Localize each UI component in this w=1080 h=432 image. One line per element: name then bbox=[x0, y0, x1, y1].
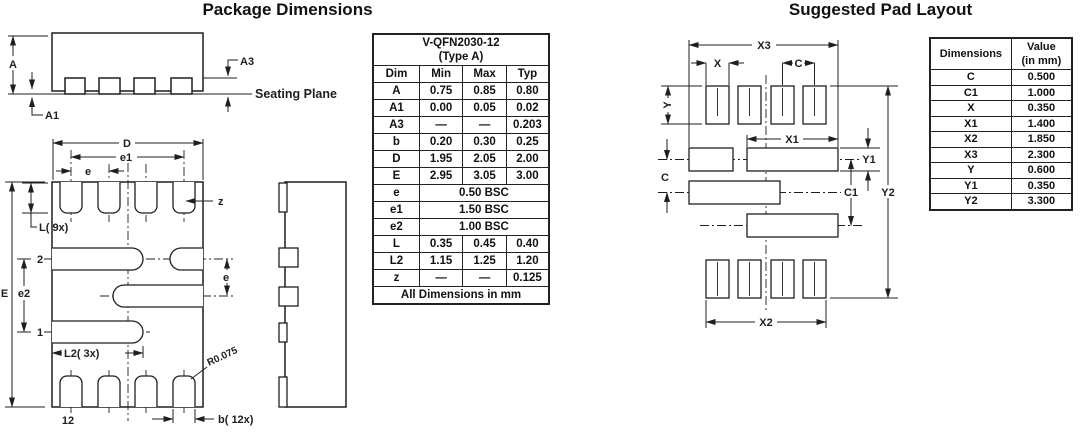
table-footer-row: All Dimensions in mm bbox=[373, 287, 549, 305]
dim-C-top: C bbox=[783, 58, 815, 85]
max-cell: 3.05 bbox=[463, 168, 506, 185]
table-row: C0.500 bbox=[930, 70, 1072, 86]
typ-cell: 0.40 bbox=[506, 236, 549, 253]
dim-L-label: L( 9x) bbox=[39, 222, 69, 234]
dim-e1-label: e1 bbox=[120, 152, 132, 164]
dim-C-left: C bbox=[661, 139, 669, 213]
dim-A3-label: A3 bbox=[240, 56, 254, 68]
typ-cell: 0.02 bbox=[506, 100, 549, 117]
dim-A1-label: A1 bbox=[45, 110, 59, 122]
dim-cell: Y2 bbox=[930, 194, 1011, 210]
table-header-row: Dimensions Value (in mm) bbox=[930, 38, 1072, 70]
table-row: Y10.350 bbox=[930, 178, 1072, 194]
dimensions-table: V-QFN2030-12 (Type A) Dim Min Max Typ A0… bbox=[372, 33, 550, 305]
pad-layout-view: X3 X C Y bbox=[658, 38, 898, 329]
value-cell: 0.500 bbox=[1011, 70, 1072, 86]
pin2-label: 2 bbox=[37, 254, 43, 266]
table-row: A10.000.050.02 bbox=[373, 100, 549, 117]
dim-D-label: D bbox=[123, 138, 131, 150]
package-side-view: Seating Plane A A1 A3 bbox=[6, 33, 337, 122]
dim-cell: z bbox=[373, 270, 419, 287]
min-cell: 0.20 bbox=[419, 134, 462, 151]
dim-Y2: Y2 bbox=[830, 86, 898, 298]
dim-A: A bbox=[6, 36, 48, 94]
min-cell: 1.15 bbox=[419, 253, 462, 270]
dim-cell: E bbox=[373, 168, 419, 185]
dim-cell: X1 bbox=[930, 116, 1011, 132]
pin1-label: 1 bbox=[37, 327, 43, 339]
table-row: X32.300 bbox=[930, 147, 1072, 163]
dim-C-top-label: C bbox=[795, 58, 803, 70]
dim-cell: X bbox=[930, 101, 1011, 117]
value-header-line1: Value bbox=[1012, 40, 1071, 54]
value-cell: 1.850 bbox=[1011, 132, 1072, 148]
radius-label: R0.075 bbox=[206, 345, 240, 369]
max-cell: 2.05 bbox=[463, 151, 506, 168]
min-cell: 0.00 bbox=[419, 100, 462, 117]
dim-e-right: e bbox=[220, 259, 233, 295]
table-row: E2.953.053.00 bbox=[373, 168, 549, 185]
max-cell: 0.45 bbox=[463, 236, 506, 253]
pad-layout-table: Dimensions Value (in mm) C0.500 C11.000 … bbox=[929, 37, 1073, 211]
dim-e2-label: e2 bbox=[18, 288, 30, 300]
value-cell: 3.300 bbox=[1011, 194, 1072, 210]
table-row: Y0.600 bbox=[930, 163, 1072, 179]
dim-Y2-label: Y2 bbox=[881, 187, 894, 199]
dim-C1-label: C1 bbox=[844, 187, 858, 199]
seating-plane-label: Seating Plane bbox=[255, 87, 337, 101]
dim-cell: L bbox=[373, 236, 419, 253]
dim-cell: A1 bbox=[373, 100, 419, 117]
dim-cell: C bbox=[930, 70, 1011, 86]
dim-cell: X2 bbox=[930, 132, 1011, 148]
typ-cell: 3.00 bbox=[506, 168, 549, 185]
dim-Y: Y bbox=[661, 86, 702, 124]
dim-cell: C1 bbox=[930, 85, 1011, 101]
dim-cell: A3 bbox=[373, 117, 419, 134]
typ-cell: 0.203 bbox=[506, 117, 549, 134]
dim-e: e bbox=[56, 166, 124, 178]
value-cell: 2.300 bbox=[1011, 147, 1072, 163]
dim-L2-label: L2( 3x) bbox=[64, 348, 100, 360]
dim-cell: A bbox=[373, 83, 419, 100]
dim-cell: Y1 bbox=[930, 178, 1011, 194]
dim-Y-label: Y bbox=[662, 101, 674, 109]
table-row: D1.952.052.00 bbox=[373, 151, 549, 168]
table-row: A0.750.850.80 bbox=[373, 83, 549, 100]
dim-C1: C1 bbox=[841, 160, 861, 226]
table-row: L0.350.450.40 bbox=[373, 236, 549, 253]
dim-X: X bbox=[691, 58, 744, 85]
package-side-profile bbox=[279, 182, 346, 407]
col-header-dim: Dim bbox=[373, 66, 419, 83]
col-header-value: Value (in mm) bbox=[1011, 38, 1072, 70]
min-cell: 0.75 bbox=[419, 83, 462, 100]
dim-X-label: X bbox=[714, 58, 722, 70]
span-cell: 0.50 BSC bbox=[419, 185, 549, 202]
dim-cell: L2 bbox=[373, 253, 419, 270]
min-cell: 2.95 bbox=[419, 168, 462, 185]
package-name: V-QFN2030-12 bbox=[374, 36, 548, 50]
pin12-label: 12 bbox=[62, 415, 74, 427]
dim-cell: e1 bbox=[373, 202, 419, 219]
dim-cell: e bbox=[373, 185, 419, 202]
table-title: V-QFN2030-12 (Type A) bbox=[373, 34, 549, 66]
dim-e1: e1 bbox=[71, 150, 184, 164]
col-header-max: Max bbox=[463, 66, 506, 83]
dim-b: b( 12x) bbox=[152, 409, 254, 426]
typ-cell: 2.00 bbox=[506, 151, 549, 168]
value-cell: 1.400 bbox=[1011, 116, 1072, 132]
dim-X3-label: X3 bbox=[757, 40, 770, 52]
typ-cell: 0.80 bbox=[506, 83, 549, 100]
table-row: A3——0.203 bbox=[373, 117, 549, 134]
table-row: X21.850 bbox=[930, 132, 1072, 148]
span-cell: 1.00 BSC bbox=[419, 219, 549, 236]
col-header-min: Min bbox=[419, 66, 462, 83]
datasheet-page: Package Dimensions Suggested Pad Layout … bbox=[0, 0, 1080, 432]
value-cell: 0.600 bbox=[1011, 163, 1072, 179]
dim-e-right-label: e bbox=[223, 272, 229, 284]
dim-C-left-label: C bbox=[661, 172, 669, 184]
max-cell: — bbox=[463, 270, 506, 287]
max-cell: 0.85 bbox=[463, 83, 506, 100]
table-footer: All Dimensions in mm bbox=[373, 287, 549, 305]
min-cell: 0.35 bbox=[419, 236, 462, 253]
table-row: X0.350 bbox=[930, 101, 1072, 117]
max-cell: 1.25 bbox=[463, 253, 506, 270]
dim-cell: b bbox=[373, 134, 419, 151]
table-row: L21.151.251.20 bbox=[373, 253, 549, 270]
max-cell: 0.30 bbox=[463, 134, 506, 151]
table-row: b0.200.300.25 bbox=[373, 134, 549, 151]
table-row: z——0.125 bbox=[373, 270, 549, 287]
min-cell: — bbox=[419, 117, 462, 134]
col-header-dimensions: Dimensions bbox=[930, 38, 1011, 70]
dim-X2-label: X2 bbox=[759, 317, 772, 329]
table-row: C11.000 bbox=[930, 85, 1072, 101]
value-cell: 0.350 bbox=[1011, 178, 1072, 194]
table-row: X11.400 bbox=[930, 116, 1072, 132]
table-title-row: V-QFN2030-12 (Type A) bbox=[373, 34, 549, 66]
table-row: e11.50 BSC bbox=[373, 202, 549, 219]
dim-z-label: z bbox=[218, 196, 224, 208]
typ-cell: 0.25 bbox=[506, 134, 549, 151]
dim-b-label: b( 12x) bbox=[218, 414, 254, 426]
value-cell: 1.000 bbox=[1011, 85, 1072, 101]
min-cell: 1.95 bbox=[419, 151, 462, 168]
table-row: e21.00 BSC bbox=[373, 219, 549, 236]
dim-cell: X3 bbox=[930, 147, 1011, 163]
dim-cell: D bbox=[373, 151, 419, 168]
dim-Y1-label: Y1 bbox=[862, 154, 875, 166]
dim-e-label: e bbox=[85, 166, 91, 178]
span-cell: 1.50 BSC bbox=[419, 202, 549, 219]
max-cell: 0.05 bbox=[463, 100, 506, 117]
dim-cell: Y bbox=[930, 163, 1011, 179]
package-type: (Type A) bbox=[374, 50, 548, 64]
table-row: e0.50 BSC bbox=[373, 185, 549, 202]
table-header-row: Dim Min Max Typ bbox=[373, 66, 549, 83]
dim-E-label: E bbox=[1, 288, 8, 300]
dim-cell: e2 bbox=[373, 219, 419, 236]
typ-cell: 1.20 bbox=[506, 253, 549, 270]
package-bottom-view: D e1 e z L( 9x) bbox=[0, 136, 254, 427]
dim-A-label: A bbox=[9, 59, 17, 71]
value-header-line2: (in mm) bbox=[1012, 54, 1071, 68]
dim-e2: e2 bbox=[15, 259, 34, 332]
dim-X1: X1 bbox=[747, 133, 838, 147]
table-row: Y23.300 bbox=[930, 194, 1072, 210]
max-cell: — bbox=[463, 117, 506, 134]
min-cell: — bbox=[419, 270, 462, 287]
col-header-typ: Typ bbox=[506, 66, 549, 83]
dim-A3: A3 bbox=[203, 56, 254, 112]
dim-X1-label: X1 bbox=[785, 134, 798, 146]
value-cell: 0.350 bbox=[1011, 101, 1072, 117]
typ-cell: 0.125 bbox=[506, 270, 549, 287]
